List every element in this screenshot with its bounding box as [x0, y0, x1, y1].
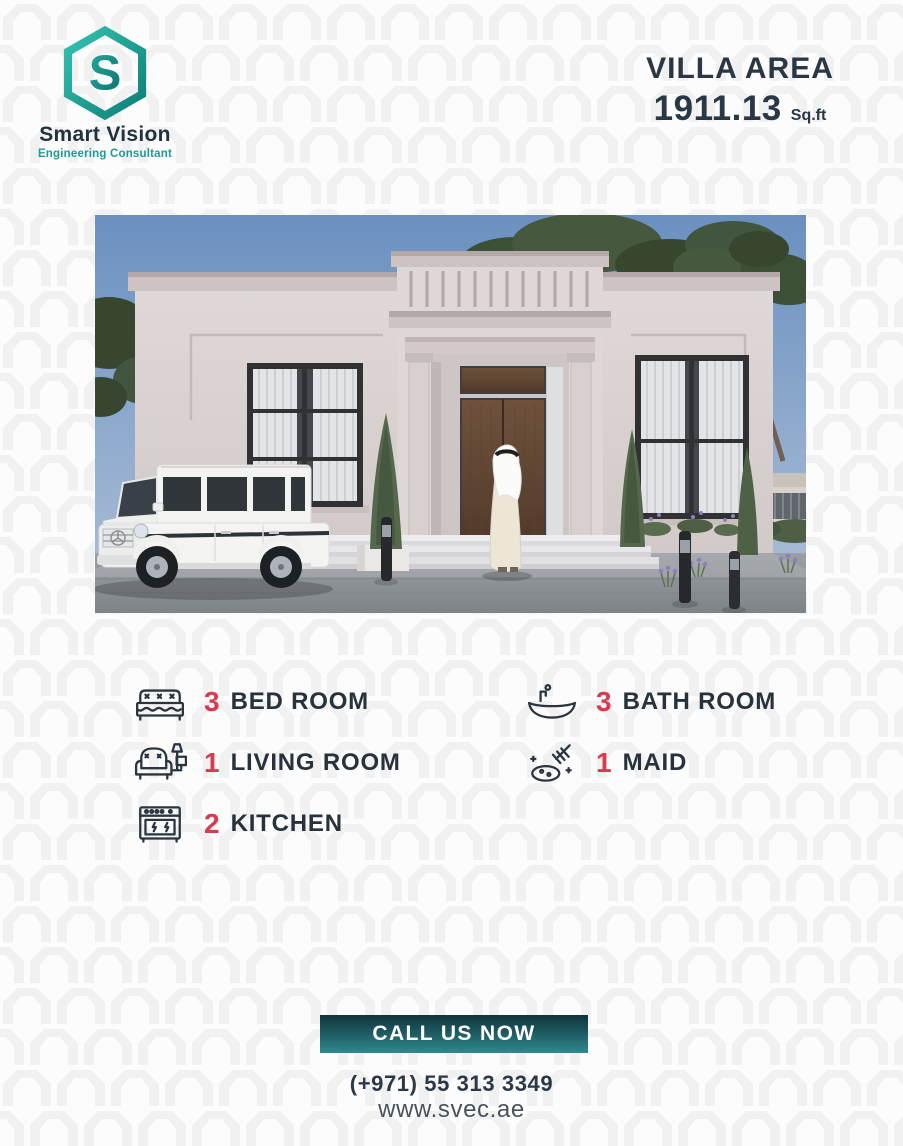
stove-icon [133, 801, 187, 847]
feature-label: KITCHEN [231, 812, 343, 836]
villa-area-value: 1911.13 [654, 89, 782, 129]
armchair-lamp-icon [133, 740, 187, 786]
phone-number: (+971) 55 313 3349 [0, 1071, 903, 1097]
bathtub-icon [525, 679, 579, 725]
feature-maid: 1 MAID [525, 732, 873, 793]
villa-area-unit: Sq.ft [791, 107, 827, 125]
villa-area-block: VILLA AREA 1911.13 Sq.ft [615, 52, 865, 129]
brand-logo-block: S Smart Vision Engineering Consultant [20, 26, 190, 160]
cleaning-icon [525, 740, 579, 786]
feature-count: 1 [204, 749, 220, 777]
website-url: www.svec.ae [0, 1096, 903, 1124]
feature-label: LIVING ROOM [231, 751, 401, 775]
call-us-now-button[interactable]: CALL US NOW [320, 1015, 588, 1053]
feature-count: 3 [204, 688, 220, 716]
brand-name: Smart Vision [39, 123, 171, 147]
svg-text:S: S [89, 46, 122, 100]
feature-bed-room: 3 BED ROOM [133, 671, 525, 732]
hexagon-s-logo-icon: S [59, 26, 151, 120]
villa-area-title: VILLA AREA [615, 52, 865, 86]
feature-label: BED ROOM [231, 690, 369, 714]
brand-tagline: Engineering Consultant [38, 148, 172, 160]
feature-label: MAID [623, 751, 688, 775]
features-grid: 3 BED ROOM 3 BATH ROOM [133, 671, 873, 854]
feature-count: 1 [596, 749, 612, 777]
villa-render-image [95, 215, 806, 613]
right-window [629, 355, 755, 525]
bed-icon [133, 679, 187, 725]
feature-bath-room: 3 BATH ROOM [525, 671, 873, 732]
feature-living-room: 1 LIVING ROOM [133, 732, 525, 793]
feature-kitchen: 2 KITCHEN [133, 793, 525, 854]
feature-count: 3 [596, 688, 612, 716]
feature-count: 2 [204, 810, 220, 838]
feature-label: BATH ROOM [623, 690, 776, 714]
